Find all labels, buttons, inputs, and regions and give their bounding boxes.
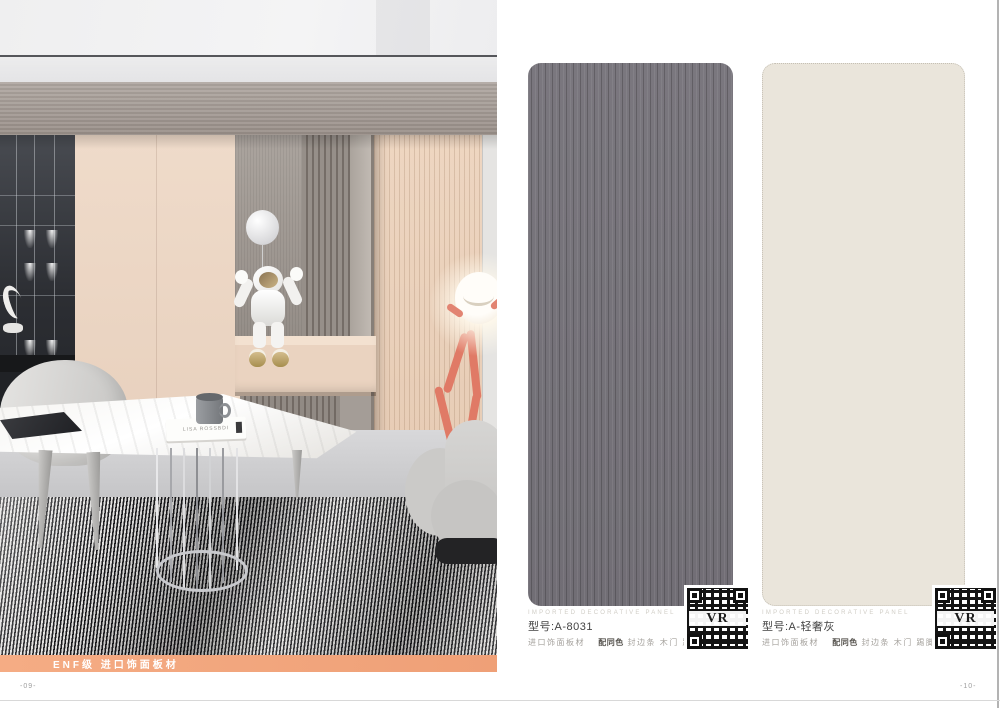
panel-seam bbox=[156, 135, 157, 430]
ceiling-recess bbox=[376, 0, 430, 55]
astronaut-glove bbox=[235, 270, 248, 284]
swatch-page: IMPORTED DECORATIVE PANEL 型号:A-8031 进口饰面… bbox=[500, 0, 1000, 708]
panel-swatch-cream bbox=[762, 63, 965, 606]
spec-match-color: 配同色 bbox=[832, 638, 858, 647]
cabinet-shelf-line bbox=[0, 225, 75, 226]
qr-vr-label: VR bbox=[689, 611, 745, 627]
qr-pattern: VR bbox=[687, 588, 748, 649]
cabinet-shelf-line bbox=[0, 195, 75, 196]
astronaut-glove bbox=[290, 267, 303, 281]
qr-finder-icon bbox=[935, 634, 950, 649]
cabinet-spotlight bbox=[24, 263, 36, 281]
balloon bbox=[246, 210, 279, 245]
product-label: IMPORTED DECORATIVE PANEL 型号:A-8031 进口饰面… bbox=[528, 610, 698, 648]
interior-render: LISA ROSSBDI ENF级 进口饰面板材 bbox=[0, 0, 497, 672]
shelf-shadow bbox=[235, 392, 376, 396]
product-spec: 进口饰面板材 配同色 封边条 木门 踢脚线 bbox=[762, 637, 932, 648]
astronaut-leg bbox=[253, 322, 266, 348]
cabinet-spotlight bbox=[24, 230, 36, 248]
product-model: 型号:A-轻奢灰 bbox=[762, 618, 932, 634]
product-spec: 进口饰面板材 配同色 封边条 木门 踢脚线 bbox=[528, 637, 698, 648]
qr-code: VR bbox=[684, 585, 751, 652]
product-model: 型号:A-8031 bbox=[528, 618, 698, 634]
cabinet-spotlight bbox=[46, 263, 58, 281]
book-title: LISA ROSSBDI bbox=[183, 425, 230, 433]
qr-finder-icon bbox=[687, 588, 702, 603]
sofa-base bbox=[435, 538, 497, 564]
astronaut-figurine bbox=[235, 262, 305, 374]
grade-caption: ENF级 进口饰面板材 bbox=[53, 656, 179, 671]
product-caption-en: IMPORTED DECORATIVE PANEL bbox=[762, 610, 932, 616]
page-edge-right bbox=[997, 0, 999, 708]
product-label: IMPORTED DECORATIVE PANEL 型号:A-轻奢灰 进口饰面板… bbox=[762, 610, 932, 648]
hand-sculpture bbox=[2, 285, 24, 333]
page-number-left: -09- bbox=[20, 683, 36, 690]
astronaut-torso bbox=[251, 290, 285, 326]
qr-code: VR bbox=[932, 585, 999, 652]
chrome-ring-legs bbox=[156, 448, 248, 594]
spec-material: 进口饰面板材 bbox=[528, 638, 585, 647]
page-edge-bottom bbox=[0, 700, 1000, 701]
caption-bar: ENF级 进口饰面板材 bbox=[0, 655, 497, 672]
product-caption-en: IMPORTED DECORATIVE PANEL bbox=[528, 610, 698, 616]
astronaut-leg bbox=[271, 322, 284, 348]
qr-finder-icon bbox=[935, 588, 950, 603]
astronaut-visor bbox=[259, 272, 278, 288]
ceiling-cove bbox=[0, 57, 497, 82]
astronaut-boot bbox=[272, 349, 289, 367]
qr-vr-label: VR bbox=[937, 611, 993, 627]
spec-match-color: 配同色 bbox=[598, 638, 624, 647]
book-label bbox=[236, 422, 242, 433]
cabinet-spotlight bbox=[46, 230, 58, 248]
astronaut-boot bbox=[249, 349, 266, 367]
ceiling-beam bbox=[0, 82, 497, 135]
qr-finder-icon bbox=[687, 634, 702, 649]
sculpture-curve bbox=[0, 283, 27, 321]
mug bbox=[196, 396, 223, 424]
mug-handle bbox=[219, 403, 231, 418]
mug-opening bbox=[196, 393, 223, 401]
wall-top-shadow bbox=[0, 135, 497, 149]
qr-finder-icon bbox=[733, 588, 748, 603]
panel-swatch-gray bbox=[528, 63, 733, 606]
sofa bbox=[405, 420, 497, 570]
qr-finder-icon bbox=[981, 588, 996, 603]
page-number-right: -10- bbox=[960, 683, 976, 690]
chrome-rod bbox=[156, 448, 158, 568]
spec-material: 进口饰面板材 bbox=[762, 638, 819, 647]
sculpture-base bbox=[3, 323, 23, 333]
catalog-spread: LISA ROSSBDI ENF级 进口饰面板材 -09- IMPORTED D… bbox=[0, 0, 1000, 708]
qr-pattern: VR bbox=[935, 588, 996, 649]
chrome-base-ring bbox=[156, 550, 248, 592]
chrome-rod bbox=[236, 448, 238, 570]
lamp-head-seam bbox=[463, 286, 494, 306]
